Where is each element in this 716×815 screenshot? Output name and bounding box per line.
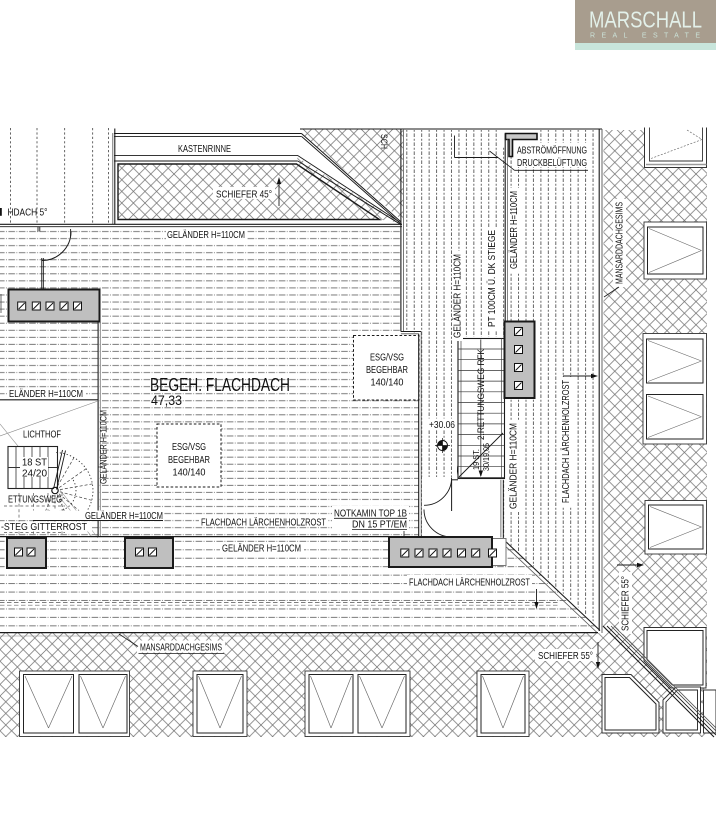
svg-text:ETTUNGSWEG: ETTUNGSWEG	[8, 494, 62, 506]
svg-text:MANSARDDACHGESIMS: MANSARDDACHGESIMS	[615, 202, 626, 284]
svg-text:BEGEHBAR: BEGEHBAR	[168, 455, 210, 466]
svg-text:DN 15 PT/EM: DN 15 PT/EM	[352, 519, 407, 531]
svg-text:PT 100CM Ü. DK STIEGE: PT 100CM Ü. DK STIEGE	[486, 230, 498, 327]
svg-text:SCHIEFER 55°: SCHIEFER 55°	[621, 576, 632, 631]
svg-text:SCHIEFER 55°: SCHIEFER 55°	[538, 650, 593, 662]
svg-text:SCH: SCH	[379, 134, 389, 149]
svg-text:LICHTHOF: LICHTHOF	[23, 429, 61, 441]
svg-text:DRUCKBELÜFTUNG: DRUCKBELÜFTUNG	[517, 157, 587, 169]
svg-text:FLACHDACH LÄRCHENHOLZROST: FLACHDACH LÄRCHENHOLZROST	[409, 577, 530, 589]
svg-text:140/140: 140/140	[371, 378, 404, 389]
svg-text:ELÄNDER H=110CM: ELÄNDER H=110CM	[9, 388, 83, 400]
svg-text:BEGEHBAR: BEGEHBAR	[366, 365, 408, 376]
svg-text:47,33: 47,33	[151, 393, 182, 408]
svg-text:MANSARDDACHGESIMS: MANSARDDACHGESIMS	[140, 643, 222, 654]
svg-text:19 ST.: 19 ST.	[471, 449, 481, 470]
svg-text:ESG/VSG: ESG/VSG	[172, 442, 206, 453]
svg-text:2.RETTUNGSWEG RFK: 2.RETTUNGSWEG RFK	[476, 349, 486, 440]
svg-text:30/19,05: 30/19,05	[481, 443, 491, 471]
svg-text:140/140: 140/140	[173, 468, 206, 479]
svg-text:FLACHDACH LÄRCHENHOLZROST: FLACHDACH LÄRCHENHOLZROST	[201, 517, 326, 529]
svg-text:24/20: 24/20	[22, 469, 47, 480]
svg-text:GELÄNDER H=110CM: GELÄNDER H=110CM	[508, 191, 520, 269]
svg-text:KASTENRINNE: KASTENRINNE	[178, 143, 231, 155]
svg-text:BEGEH. FLACHDACH: BEGEH. FLACHDACH	[150, 375, 290, 395]
svg-text:GELÄNDER H=110CM: GELÄNDER H=110CM	[452, 254, 464, 338]
svg-text:ESG/VSG: ESG/VSG	[370, 353, 404, 364]
svg-text:GELÄNDER H=110CM: GELÄNDER H=110CM	[99, 410, 110, 484]
svg-text:GELÄNDER H=110CM: GELÄNDER H=110CM	[167, 229, 245, 241]
svg-text:-STEG GITTERROST: -STEG GITTERROST	[1, 521, 87, 533]
svg-text:GELÄNDER H=110CM: GELÄNDER H=110CM	[508, 423, 520, 509]
svg-text:FLACHDACH LÄRCHENHOLZROST: FLACHDACH LÄRCHENHOLZROST	[560, 380, 572, 503]
svg-text:18 ST: 18 ST	[22, 458, 47, 469]
svg-text:MARSCHALL: MARSCHALL	[589, 7, 702, 33]
svg-text:ABSTRÖMÖFFNUNG: ABSTRÖMÖFFNUNG	[517, 145, 587, 157]
svg-text:GELÄNDER H=110CM: GELÄNDER H=110CM	[222, 543, 301, 555]
svg-text:HDACH 5°: HDACH 5°	[8, 206, 48, 218]
svg-text:+30.06: +30.06	[429, 420, 455, 431]
svg-text:SCHIEFER 45°: SCHIEFER 45°	[216, 189, 272, 201]
